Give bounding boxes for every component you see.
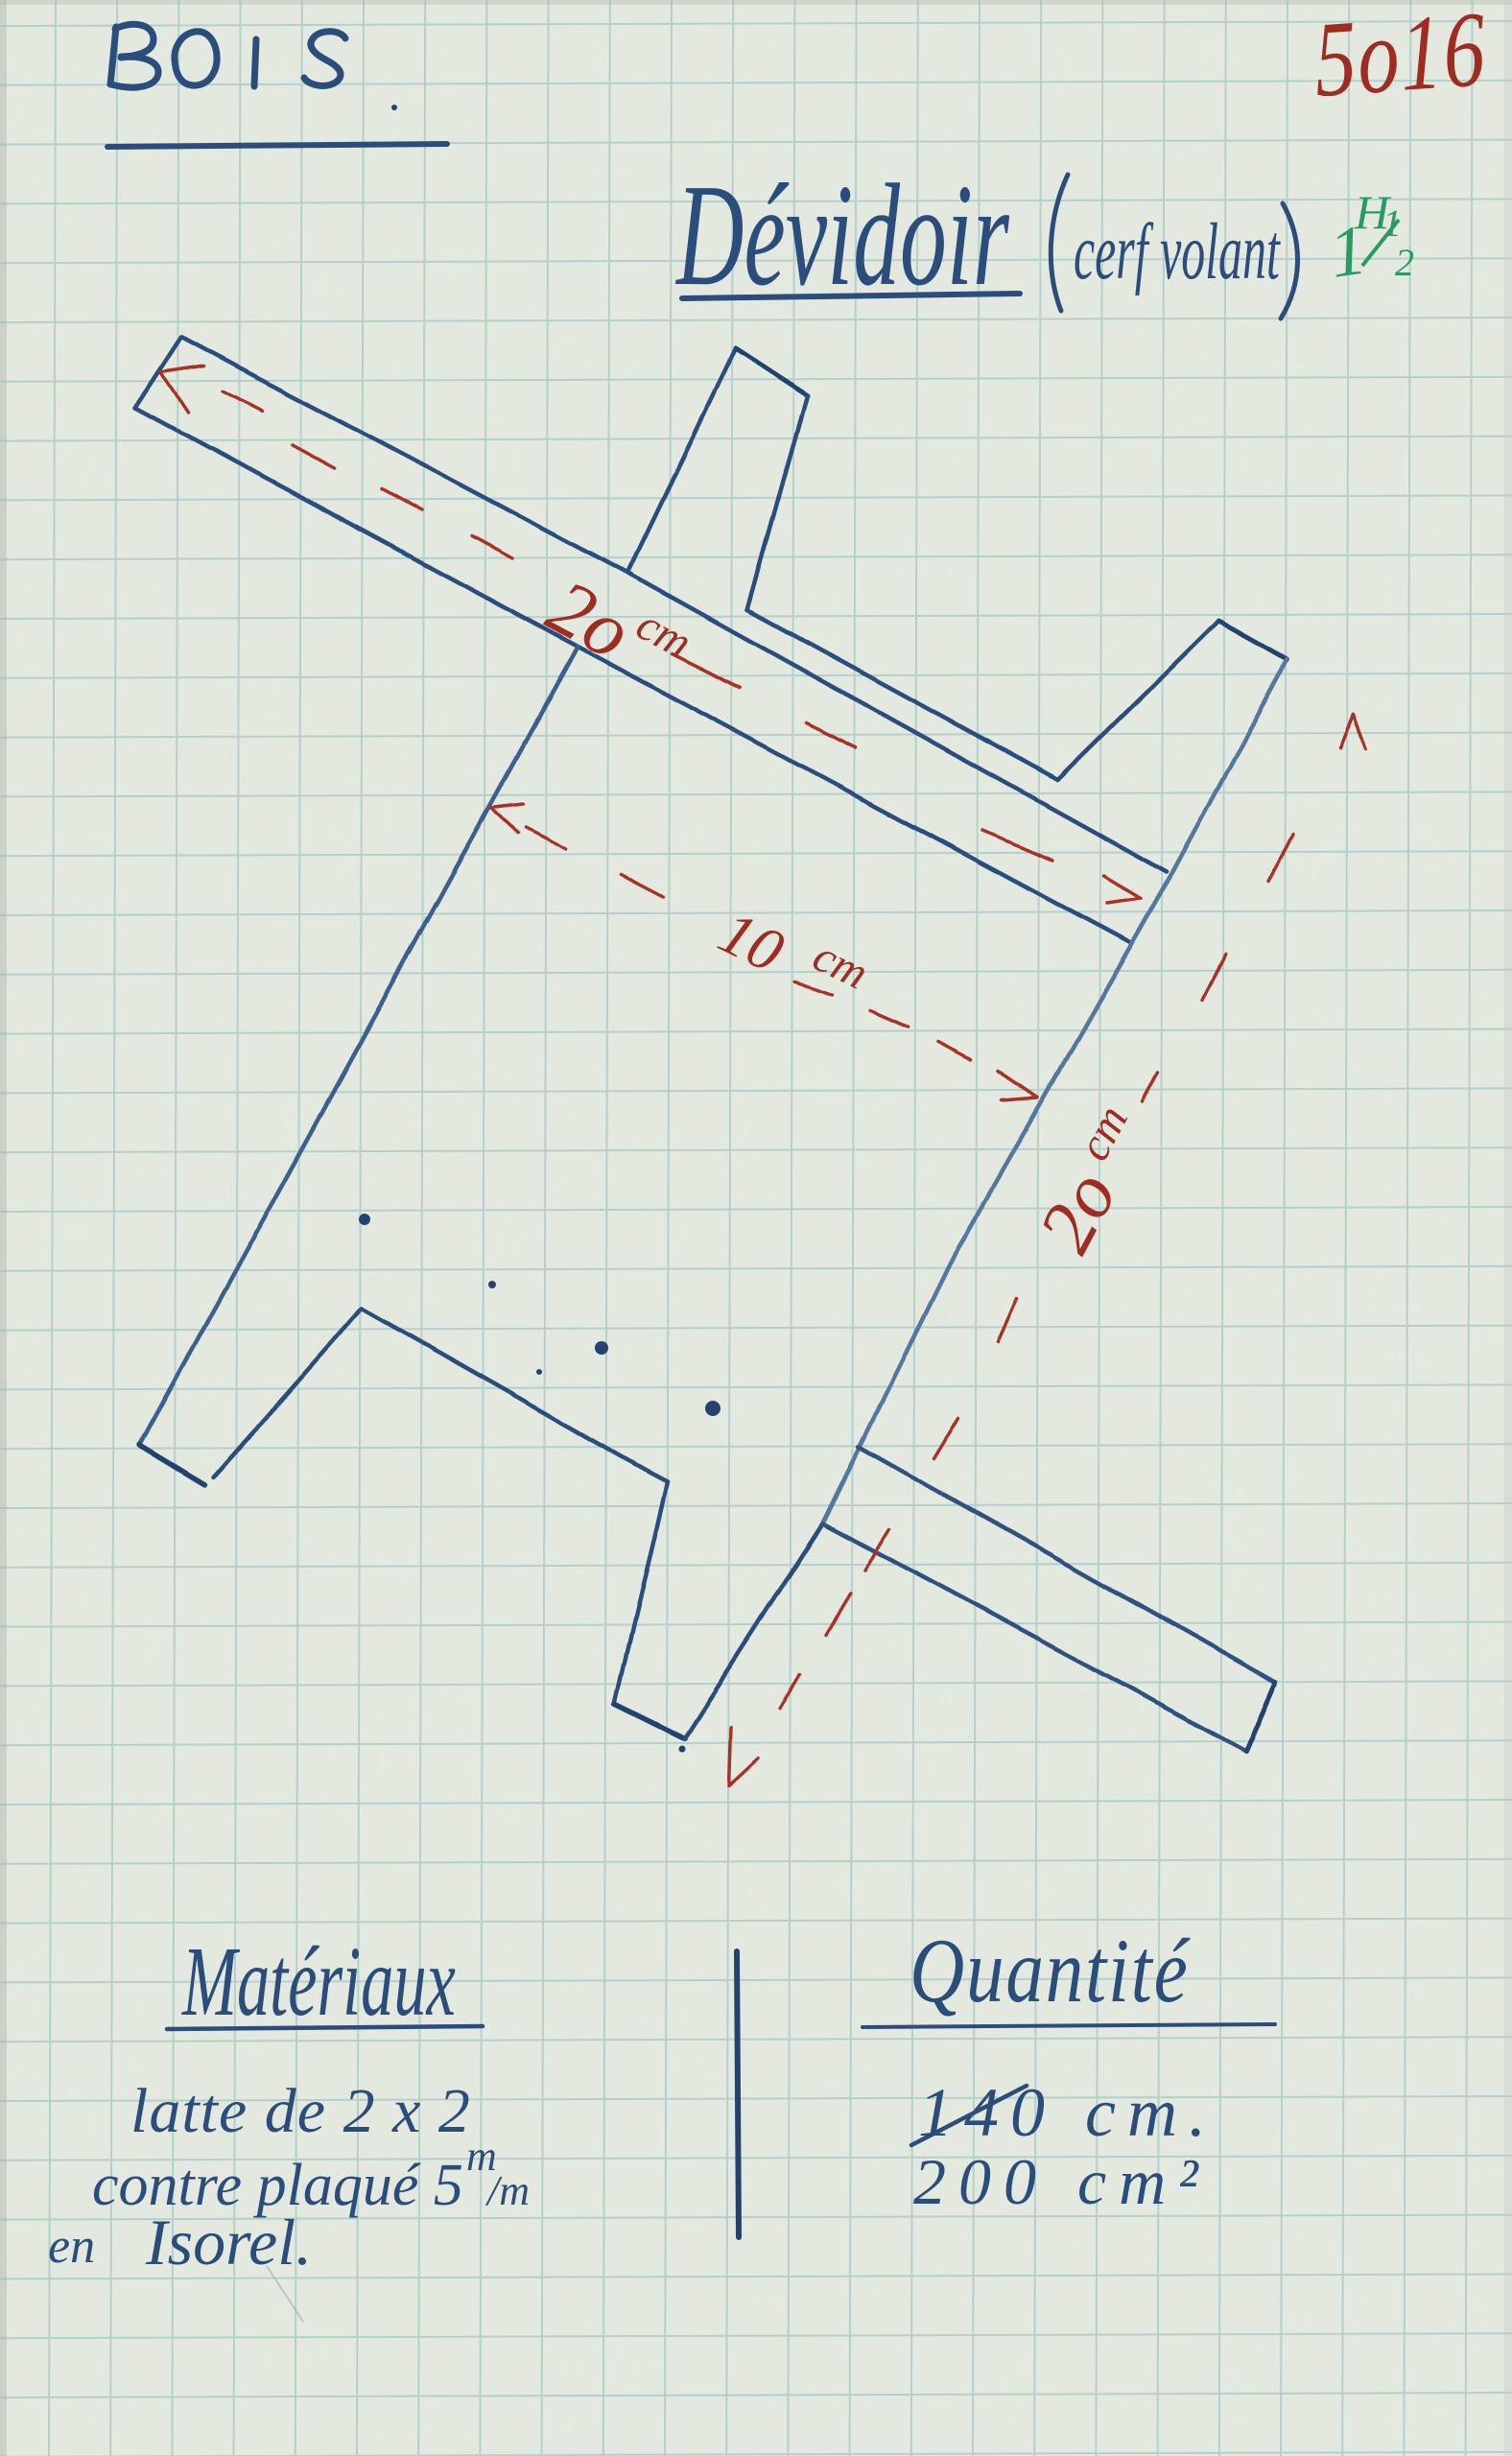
svg-text:latte de 2 x 2: latte de 2 x 2: [130, 2076, 471, 2146]
svg-text:Matériaux: Matériaux: [180, 1926, 456, 2036]
svg-text:5o16: 5o16: [1312, 0, 1489, 120]
svg-text:en: en: [48, 2219, 95, 2274]
svg-text:cerf volant: cerf volant: [1074, 207, 1281, 295]
svg-text:140 cm.: 140 cm.: [918, 2074, 1217, 2151]
svg-text:200 cm²: 200 cm²: [913, 2145, 1211, 2218]
svg-text:/m: /m: [484, 2167, 530, 2214]
svg-text:2: 2: [1395, 241, 1414, 284]
svg-text:Quantité: Quantité: [910, 1920, 1191, 2020]
svg-text:Isorel.: Isorel.: [145, 2206, 312, 2279]
